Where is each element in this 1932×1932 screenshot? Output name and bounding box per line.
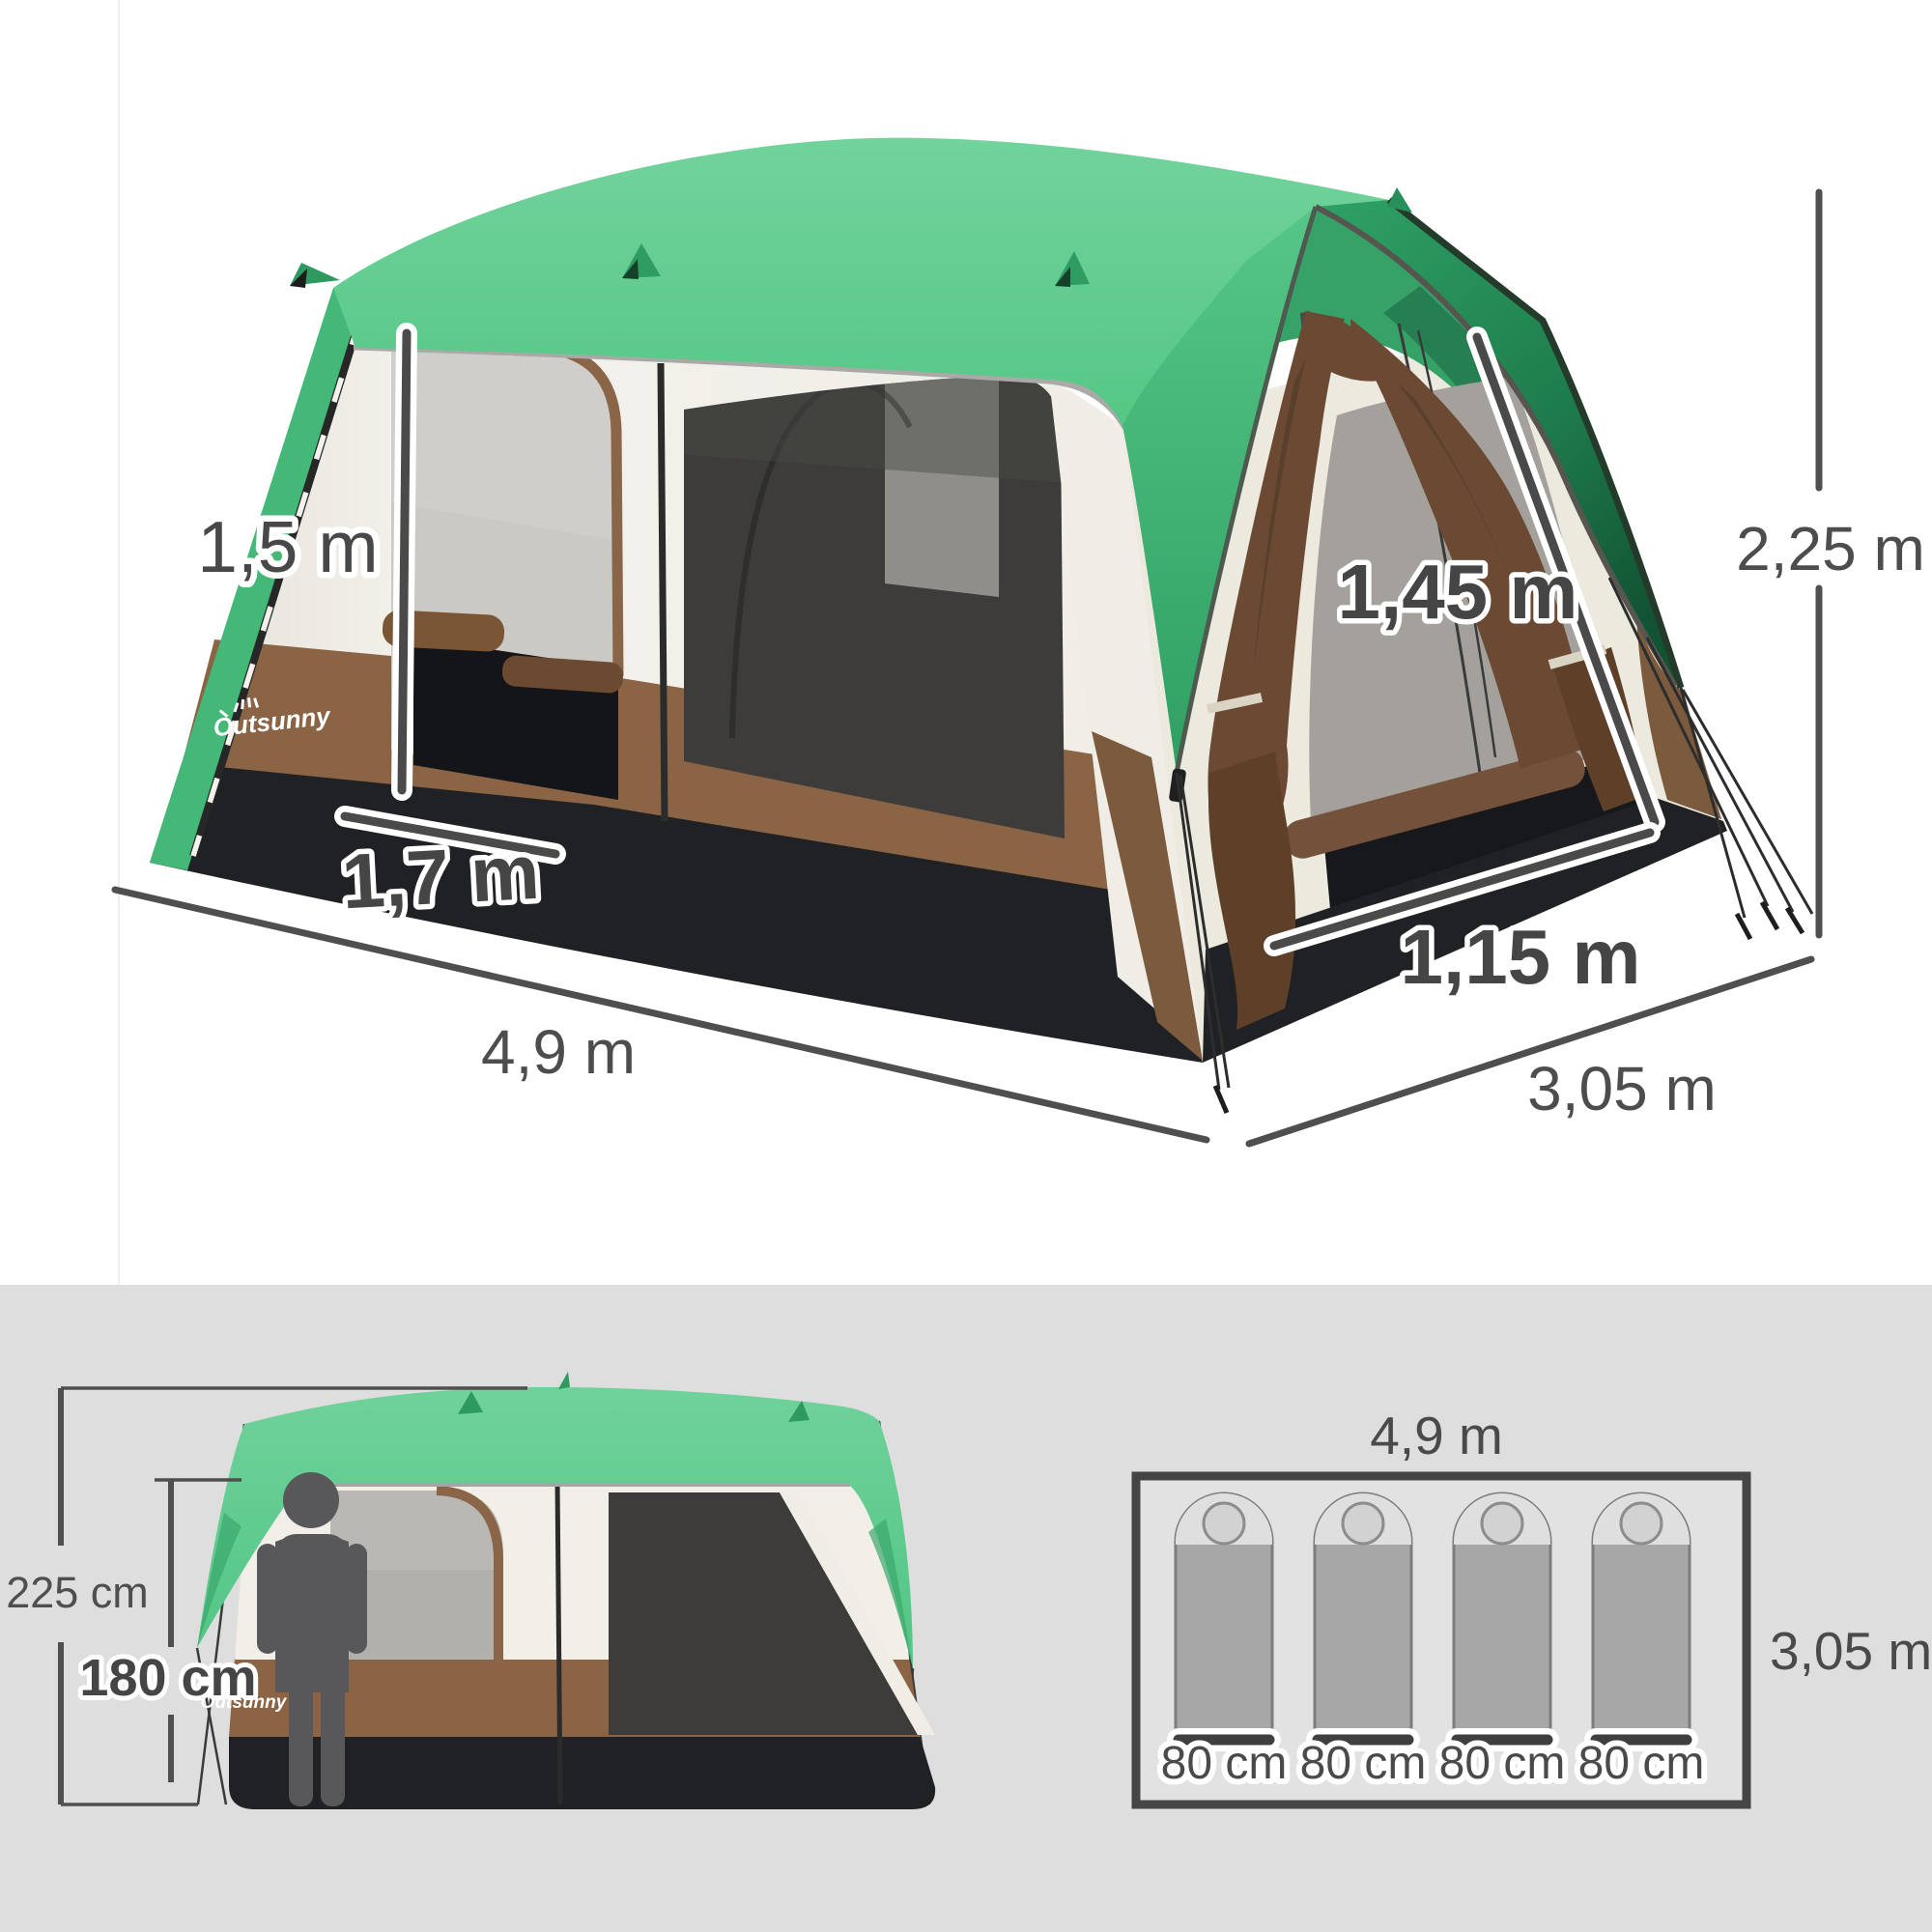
- svg-text:4,9 m: 4,9 m: [1370, 1406, 1503, 1465]
- svg-text:4,9 m: 4,9 m: [481, 1017, 636, 1087]
- svg-text:3,05 m: 3,05 m: [1770, 1621, 1932, 1681]
- svg-text:1,45 m: 1,45 m: [1337, 549, 1577, 635]
- svg-text:80 cm: 80 cm: [1439, 1738, 1566, 1789]
- svg-text:2,25 m: 2,25 m: [1736, 514, 1925, 583]
- svg-text:80 cm: 80 cm: [1578, 1738, 1705, 1789]
- svg-text:3,05 m: 3,05 m: [1527, 1054, 1717, 1123]
- svg-text:1,5 m: 1,5 m: [197, 506, 379, 587]
- svg-text:1,15 m: 1,15 m: [1400, 914, 1640, 1000]
- svg-text:80 cm: 80 cm: [1300, 1738, 1427, 1789]
- svg-text:225 cm: 225 cm: [6, 1568, 149, 1617]
- svg-text:1,7 m: 1,7 m: [340, 829, 542, 925]
- svg-text:80 cm: 80 cm: [1161, 1738, 1288, 1789]
- svg-text:180 cm: 180 cm: [79, 1649, 256, 1707]
